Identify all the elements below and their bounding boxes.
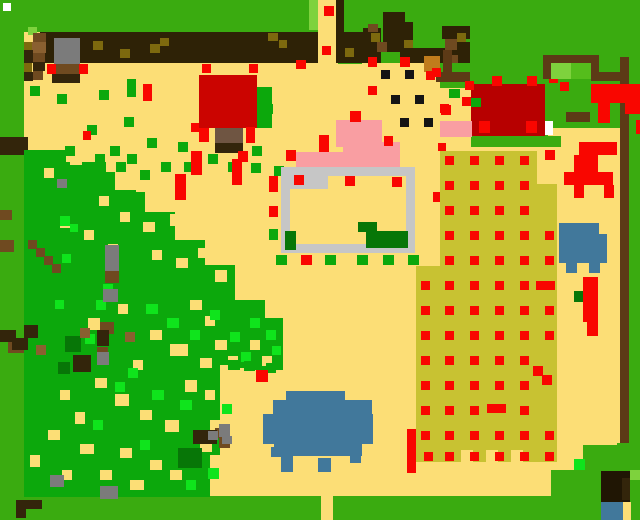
game-viewport — [0, 0, 640, 520]
farm-map-canvas[interactable] — [0, 0, 640, 520]
